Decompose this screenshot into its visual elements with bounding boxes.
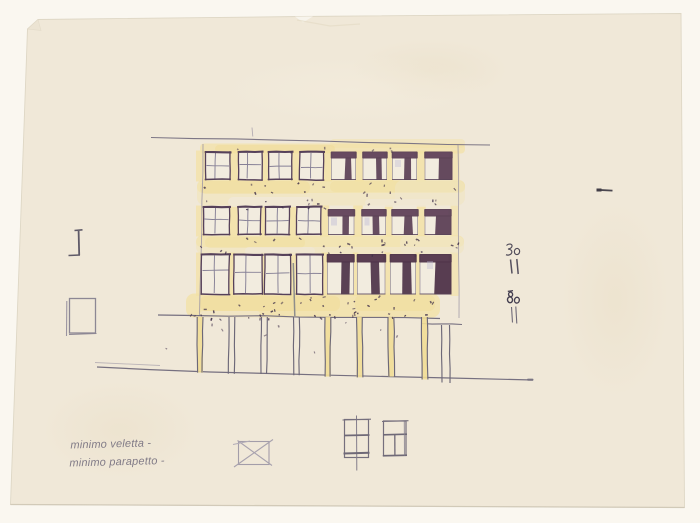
svg-text:minimo veletta -: minimo veletta - xyxy=(70,437,151,451)
svg-text:minimo parapetto -: minimo parapetto - xyxy=(69,455,165,469)
